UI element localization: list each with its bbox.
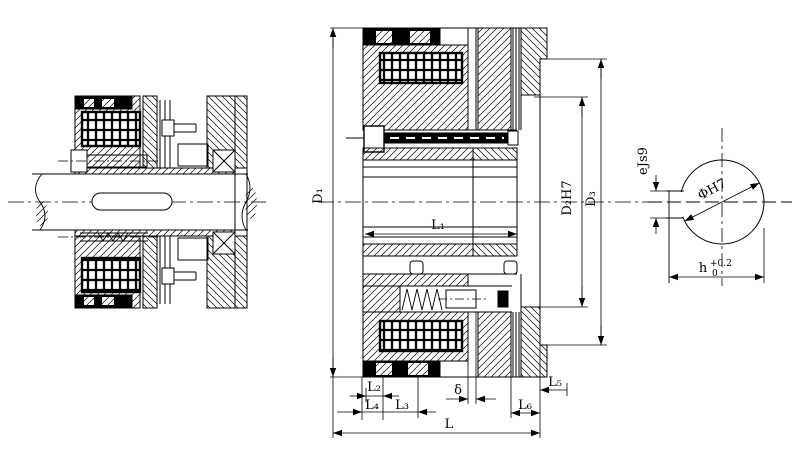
dim-l1-label: L₁: [431, 218, 445, 233]
armature-spring-channel: [363, 274, 512, 312]
left-view-assembly: [8, 96, 266, 308]
rotor-upper: [478, 28, 511, 130]
middle-view-section: D₁ D₂H7 D₃ L₁: [311, 28, 648, 438]
dim-h-sub: 0: [712, 269, 718, 279]
dim-h-label: h: [699, 261, 708, 276]
shaft-keyway-slot: [92, 193, 172, 210]
stator-housing: [363, 29, 468, 377]
rotor-lower: [478, 312, 511, 377]
dim-h-sup: +0.2: [710, 259, 732, 269]
dim-d1: [330, 28, 363, 438]
dim-d1-label: D₁: [311, 188, 326, 204]
dim-phi-label: ΦH7: [695, 176, 729, 203]
dim-e-label: eJs9: [636, 147, 651, 175]
dim-l5-label: L₅: [548, 375, 562, 390]
dim-l4-label: L₄: [365, 398, 379, 413]
dim-delta-label: δ: [454, 383, 462, 398]
dim-d2-label: D₂H7: [560, 180, 575, 215]
coil-winding-top: [82, 112, 140, 146]
air-gap-and-rotor: [468, 28, 519, 404]
dim-d3-label: D₃: [584, 191, 599, 207]
armature-flange: [521, 28, 547, 377]
technical-drawing-canvas: D₁ D₂H7 D₃ L₁: [0, 0, 800, 460]
dim-l2-label: L₂: [367, 380, 381, 395]
dim-l3-label: L₃: [395, 398, 409, 413]
coil-winding-bottom: [82, 258, 140, 292]
dim-l6-label: L₆: [518, 398, 532, 413]
hub-and-bore: [363, 148, 517, 274]
pressure-spring: [402, 289, 442, 310]
shaft-break-hatch-left: [36, 201, 48, 227]
coil-winding-lower: [380, 321, 462, 351]
right-view-bore: ΦH7 eJs9 h +0.2 0: [636, 128, 792, 286]
clutch-drawing: D₁ D₂H7 D₃ L₁: [0, 0, 800, 460]
dim-l-label: L: [445, 417, 454, 432]
coil-winding-upper: [380, 53, 462, 83]
